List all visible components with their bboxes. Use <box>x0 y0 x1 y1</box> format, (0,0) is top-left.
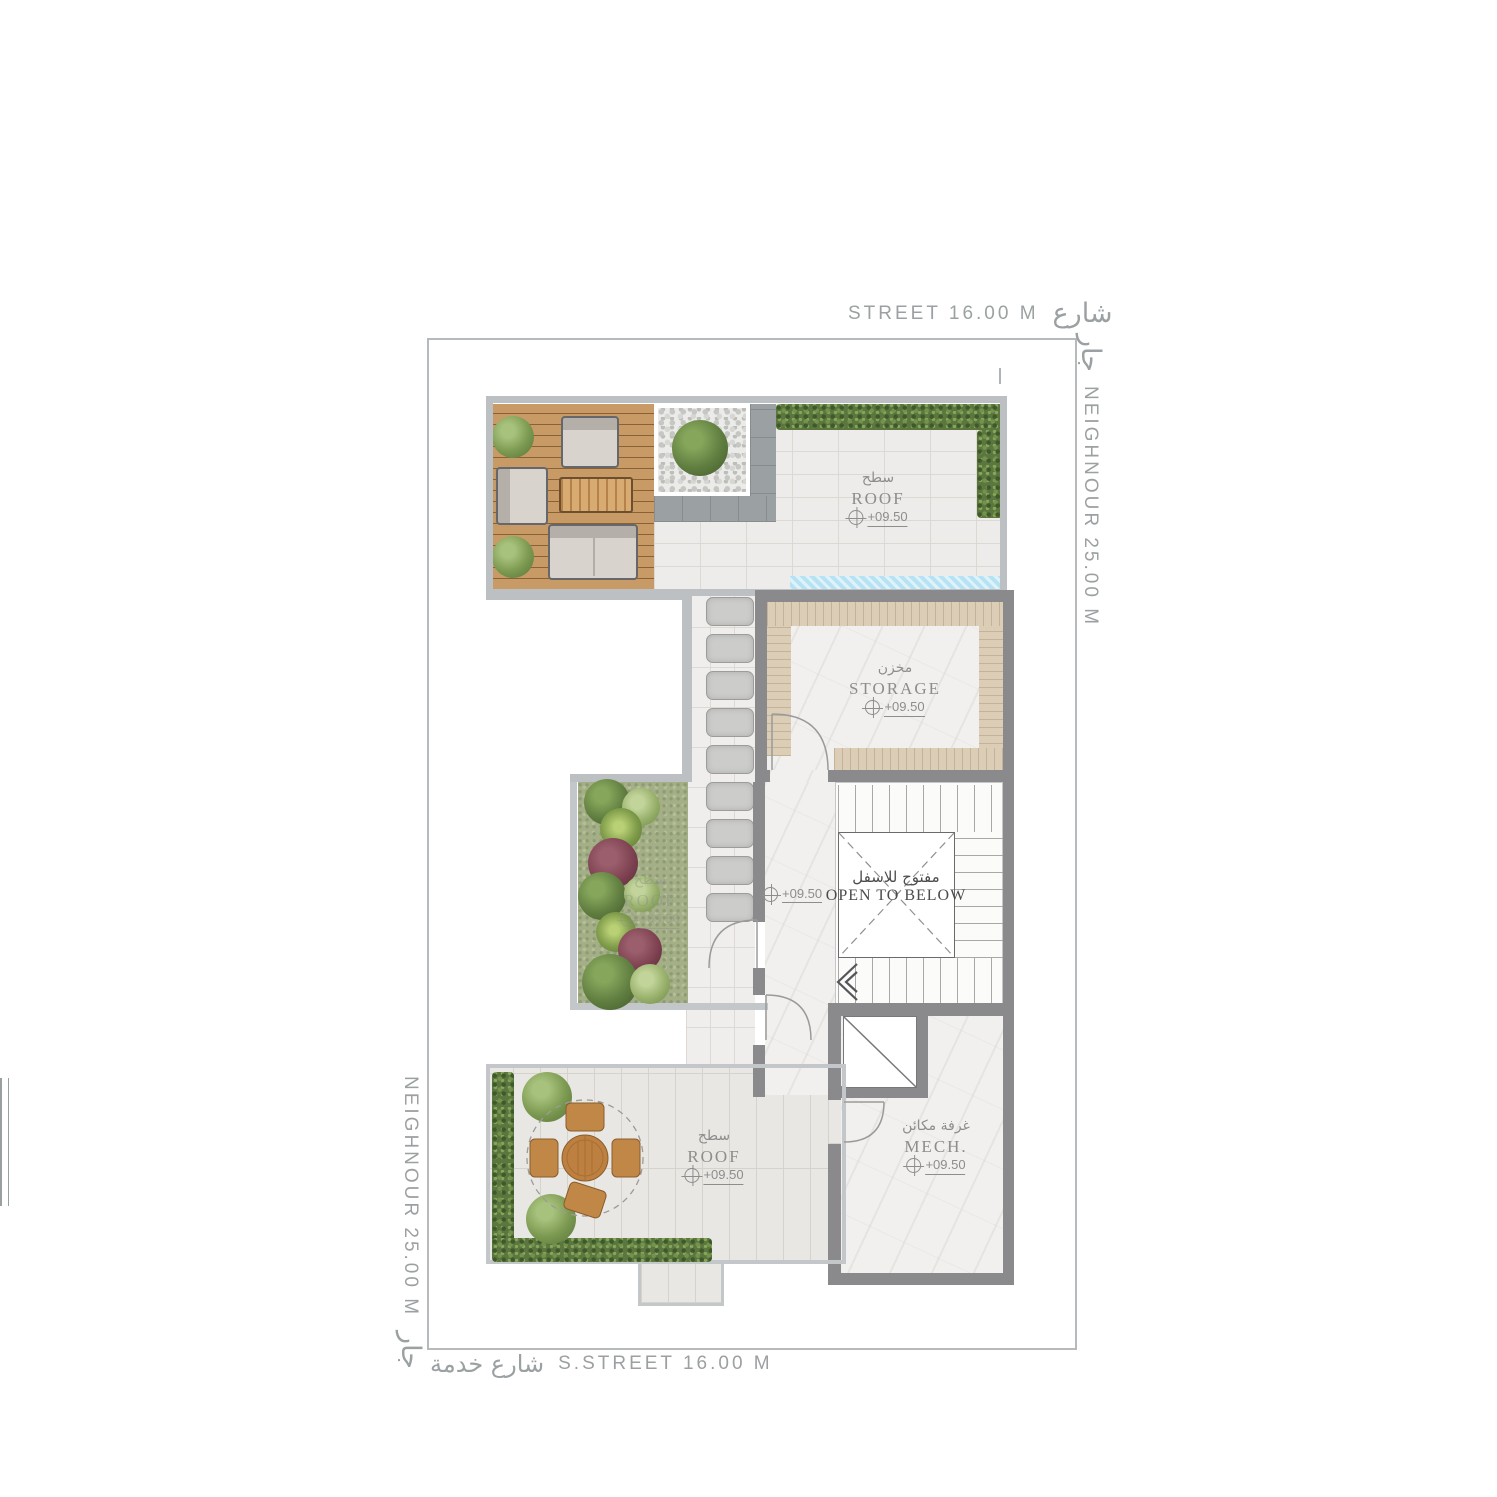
street-label-top: STREET 16.00 M شارع <box>848 298 1113 329</box>
mech-door-arc <box>844 1102 884 1142</box>
level-marker: +09.50 <box>906 1157 965 1175</box>
roof-plan-canvas: سطح ROOF +09.50 مخزن STORAGE +09.50 مفتو… <box>0 0 1497 1497</box>
level-symbol-icon <box>848 510 863 525</box>
shaft-diagonal <box>844 1017 916 1087</box>
neighbour-label-left: NEIGHNOUR 25.00 M جار <box>395 1076 426 1369</box>
mech-label: غرفة مكائن MECH. +09.50 <box>902 1118 970 1179</box>
dining-chair <box>530 1139 558 1177</box>
storage-door-arc <box>772 714 828 770</box>
stair-arrow <box>838 964 857 1000</box>
linework-overlay <box>0 0 1497 1497</box>
level-symbol-icon <box>763 887 778 902</box>
corridor-south-door-arc <box>766 995 811 1040</box>
level-symbol-icon <box>684 1168 699 1183</box>
storage-label: مخزن STORAGE +09.50 <box>849 660 941 721</box>
roof-top-label: سطح ROOF +09.50 <box>848 470 907 531</box>
dining-chair <box>566 1103 604 1131</box>
level-marker: +09.50 <box>848 509 907 527</box>
level-marker: +09.50 <box>865 699 924 717</box>
garden-roof-label: سطح ROOF +09.50 <box>620 872 679 933</box>
level-marker: +09.50 <box>620 911 679 929</box>
corridor-level-marker: +09.50 <box>763 886 822 903</box>
roof-terrace-label: سطح ROOF +09.50 <box>684 1128 743 1189</box>
level-marker: +09.50 <box>684 1167 743 1185</box>
street-label-bottom: شارع خدمة S.STREET 16.00 M <box>430 1350 773 1378</box>
dining-chair <box>563 1181 608 1219</box>
neighbour-label-right: جار NEIGHNOUR 25.00 M <box>1075 334 1106 627</box>
open-to-below-label: مفتوح للاسفل OPEN TO BELOW <box>826 868 966 905</box>
dining-set <box>527 1100 643 1219</box>
level-symbol-icon <box>620 912 635 927</box>
level-symbol-icon <box>906 1158 921 1173</box>
level-symbol-icon <box>865 700 880 715</box>
dining-chair <box>612 1139 640 1177</box>
corridor-west-door-arc <box>709 920 757 968</box>
